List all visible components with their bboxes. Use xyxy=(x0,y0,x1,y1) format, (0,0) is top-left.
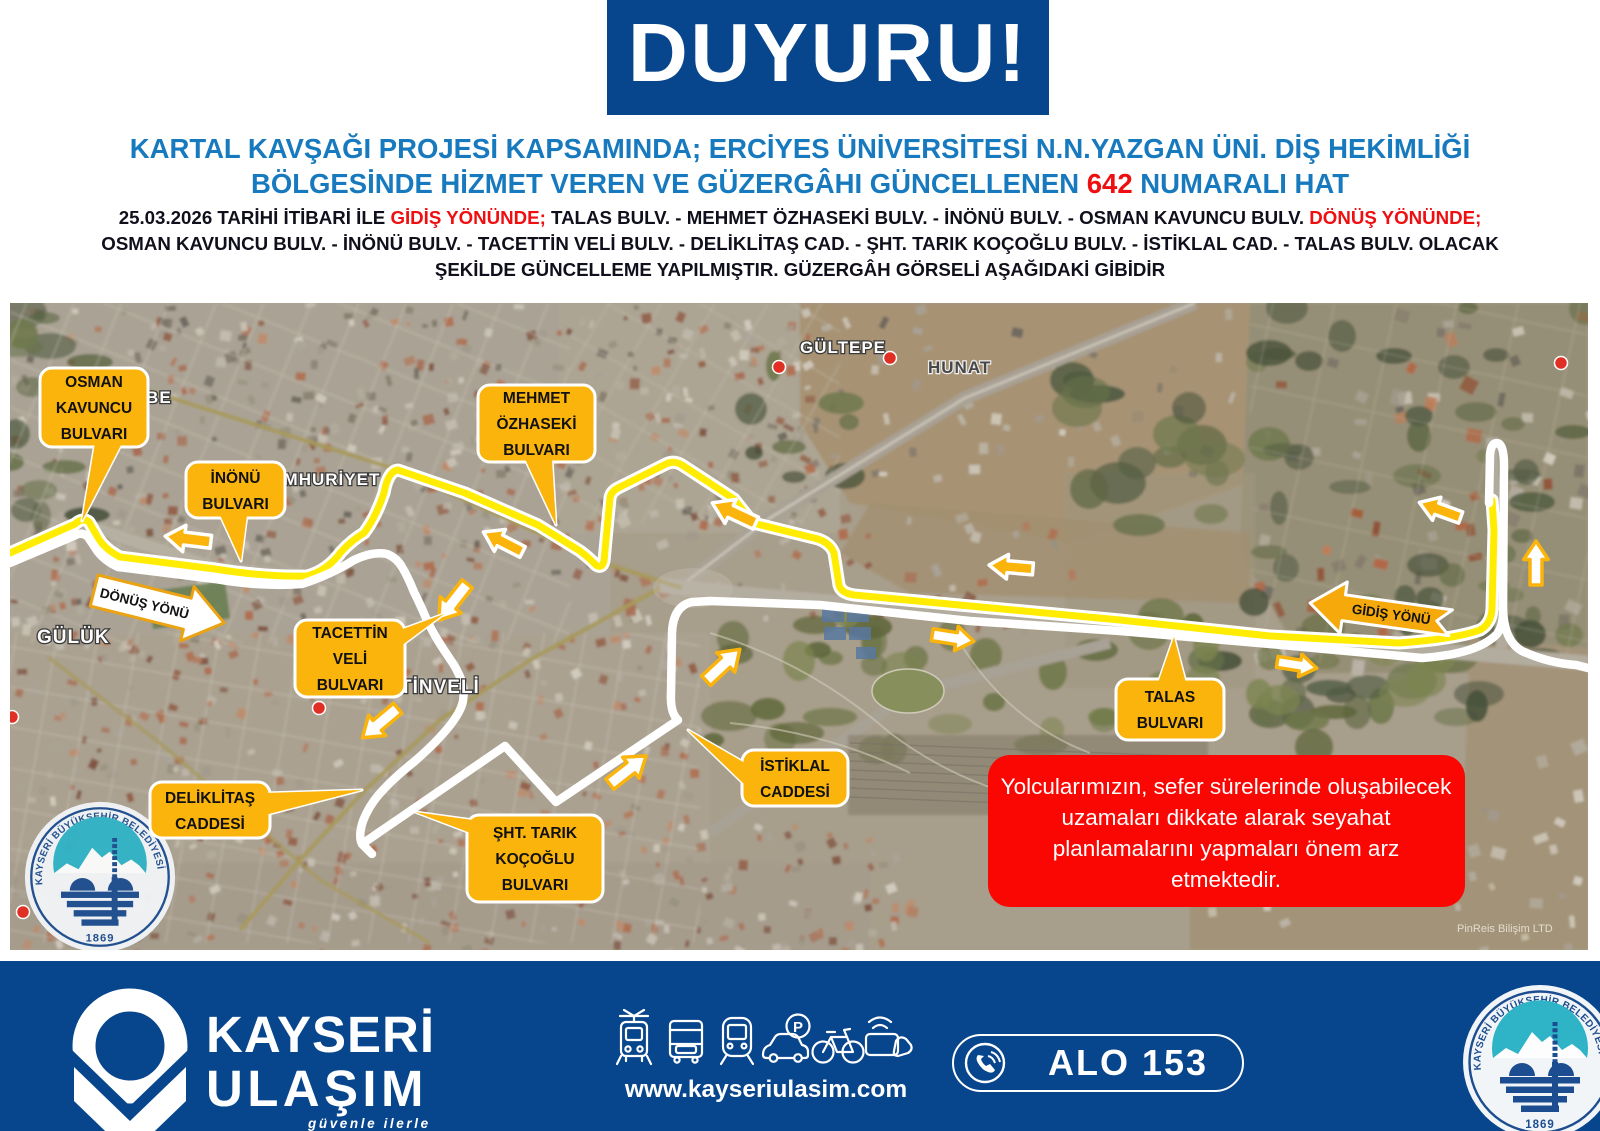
svg-text:MEHMET: MEHMET xyxy=(503,390,571,407)
svg-text:TİNVELİ: TİNVELİ xyxy=(400,677,480,698)
svg-text:VELİ: VELİ xyxy=(333,651,367,668)
svg-text:BULVARI: BULVARI xyxy=(317,677,384,694)
svg-text:KAVUNCU: KAVUNCU xyxy=(56,400,132,417)
svg-text:1869: 1869 xyxy=(1525,1119,1555,1131)
svg-text:PinReis Bilişim LTD: PinReis Bilişim LTD xyxy=(1457,923,1553,935)
svg-text:BULVARI: BULVARI xyxy=(503,442,570,459)
svg-text:GÜLÜK: GÜLÜK xyxy=(37,627,110,648)
svg-text:KAYSERİ: KAYSERİ xyxy=(206,1006,435,1063)
svg-text:KOÇOĞLU: KOÇOĞLU xyxy=(495,850,574,868)
svg-text:İNÖNÜ: İNÖNÜ xyxy=(211,470,261,487)
svg-text:TALAS: TALAS xyxy=(1145,689,1196,706)
svg-text:GÜLTEPE: GÜLTEPE xyxy=(800,338,886,357)
svg-text:BULVARI: BULVARI xyxy=(1137,715,1204,732)
svg-text:güvenle ilerle: güvenle ilerle xyxy=(307,1116,431,1131)
svg-text:DELİKLİTAŞ: DELİKLİTAŞ xyxy=(165,790,255,807)
svg-text:ŞHT. TARIK: ŞHT. TARIK xyxy=(493,825,578,842)
svg-text:CADDESİ: CADDESİ xyxy=(760,784,830,801)
svg-text:CADDESİ: CADDESİ xyxy=(175,816,245,833)
svg-text:ULAŞIM: ULAŞIM xyxy=(206,1060,428,1117)
svg-text:ÖZHASEKİ: ÖZHASEKİ xyxy=(496,416,576,433)
svg-text:İSTİKLAL: İSTİKLAL xyxy=(760,758,830,775)
svg-text:1869: 1869 xyxy=(86,932,115,944)
svg-text:BULVARI: BULVARI xyxy=(202,496,269,513)
svg-text:etmektedir.: etmektedir. xyxy=(1171,867,1281,892)
svg-text:HUNAT: HUNAT xyxy=(928,358,991,377)
svg-text:BULVARI: BULVARI xyxy=(502,877,569,894)
svg-text:TACETTİN: TACETTİN xyxy=(312,625,387,642)
svg-text:ALO 153: ALO 153 xyxy=(1048,1042,1208,1083)
svg-text:OSMAN: OSMAN xyxy=(65,374,123,391)
svg-text:BULVARI: BULVARI xyxy=(61,426,128,443)
svg-text:planlamalarını yapmaları önem: planlamalarını yapmaları önem arz xyxy=(1053,836,1399,861)
svg-text:www.kayseriulasim.com: www.kayseriulasim.com xyxy=(624,1076,907,1103)
svg-text:Yolcularımızın, sefer süreleri: Yolcularımızın, sefer sürelerinde oluşab… xyxy=(1001,774,1452,799)
svg-text:uzamaları dikkate alarak seyah: uzamaları dikkate alarak seyahat xyxy=(1062,805,1392,830)
